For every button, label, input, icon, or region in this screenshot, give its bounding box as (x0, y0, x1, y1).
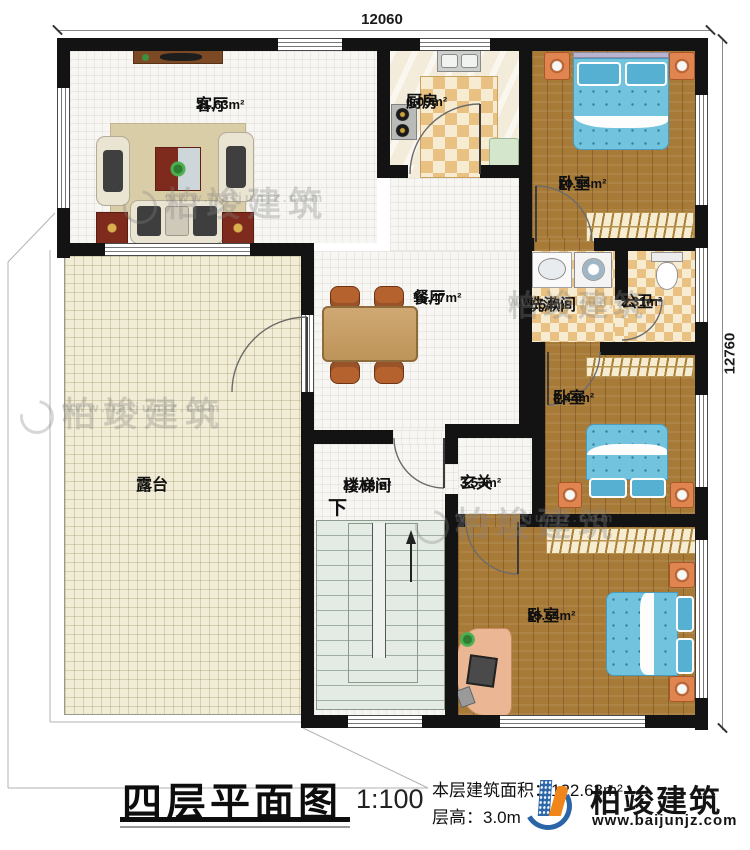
computer-monitor (466, 654, 498, 688)
wall (377, 51, 390, 178)
wardrobe (586, 357, 694, 377)
room-name: 露台 (136, 477, 168, 495)
dining-chair (374, 360, 404, 384)
wall (342, 38, 420, 51)
dimension-line-right (722, 40, 723, 730)
wall (301, 430, 314, 728)
window (695, 248, 708, 322)
room-area: 15.64m² (527, 608, 575, 624)
terrace-door-arc (230, 315, 309, 395)
floor-height-text: 层高：3.0m (432, 803, 521, 828)
window (348, 715, 422, 728)
side-table (222, 212, 254, 244)
window (57, 88, 70, 208)
wall (519, 238, 534, 251)
plant-icon (460, 632, 475, 647)
nightstand (669, 562, 695, 588)
nightstand (558, 482, 582, 508)
sofa-cushion (193, 206, 217, 236)
room-area: 6.09m² (406, 94, 447, 110)
dimension-right-value: 12760 (722, 324, 739, 384)
wall (490, 38, 708, 51)
room-area: 16.47m² (413, 290, 461, 306)
window (500, 715, 645, 728)
wall (615, 251, 628, 300)
stair-direction-arrow (406, 530, 416, 544)
wall (594, 238, 708, 251)
armchair-cushion (103, 150, 123, 192)
window (695, 95, 708, 205)
pillow (589, 478, 627, 498)
sofa-cushion (165, 206, 189, 236)
pillow (676, 638, 694, 674)
wall (520, 514, 708, 527)
wall (57, 38, 70, 90)
room-area: 3.53m² (460, 475, 501, 491)
title-underline-thin (120, 826, 350, 828)
wall (519, 51, 532, 251)
window (420, 38, 490, 51)
wall (301, 256, 314, 315)
room-area: 8.44m² (553, 390, 594, 406)
room-area: 21.63m² (196, 97, 244, 113)
stair-direction-arrow-stem (410, 544, 412, 582)
window (695, 540, 708, 698)
washing-machine-door (582, 258, 605, 281)
pillow (577, 62, 621, 86)
dimension-top-value: 12060 (350, 11, 414, 28)
wall (448, 424, 538, 438)
dimension-line-top (57, 30, 710, 31)
armchair-cushion (226, 146, 246, 188)
stairhall-door-arc (392, 436, 446, 494)
nightstand (670, 482, 694, 508)
bedroom-bottom-door-arc (464, 520, 520, 580)
room-area: 2.54m² (528, 297, 569, 313)
wall (303, 430, 393, 444)
wall (519, 251, 532, 431)
window (278, 38, 342, 51)
wall (445, 494, 458, 728)
floor-plan-canvas: 客厅 21.63m² 厨房 6.09m² 卧室 10.94m² 餐厅 16.47… (0, 0, 750, 850)
wall (445, 424, 458, 464)
pillow (630, 478, 666, 498)
room-area: 10.94m² (558, 176, 606, 192)
kitchen-sink-basin (461, 54, 478, 68)
window (695, 395, 708, 487)
company-logo-icon (522, 776, 586, 838)
plant-icon (170, 161, 186, 177)
toilet-bowl (656, 262, 678, 290)
washroom-sink-basin (538, 258, 566, 280)
bed-sheet (640, 593, 654, 675)
dining-table (322, 306, 418, 362)
room-area: 12.18m² (343, 478, 391, 494)
nightstand (669, 676, 695, 702)
company-website: www.baijunjz.com (592, 812, 737, 829)
tv (160, 53, 202, 61)
room-area: 2.31m² (621, 294, 662, 310)
side-table (96, 212, 128, 244)
pillow (625, 62, 667, 86)
bed-sheet (587, 444, 667, 455)
pillow (676, 596, 694, 632)
kitchen-sink-basin (441, 54, 458, 68)
title-underline (120, 817, 350, 822)
nightstand (669, 52, 695, 80)
kitchen-door-arc (408, 102, 482, 176)
wall (377, 165, 408, 178)
bed-headboard (573, 52, 669, 58)
staircase-rail (372, 523, 386, 658)
wall (57, 38, 280, 51)
wall (301, 392, 314, 430)
sofa-cushion (137, 206, 161, 236)
nightstand (544, 52, 570, 80)
wall (519, 342, 545, 355)
wardrobe (546, 528, 698, 554)
plant-icon (142, 54, 149, 61)
stair-direction-text: 下 (328, 498, 347, 520)
dining-chair (330, 360, 360, 384)
wall (445, 514, 465, 527)
plan-scale: 1:100 (356, 784, 424, 815)
window (105, 243, 250, 256)
toilet-tank (651, 252, 683, 262)
